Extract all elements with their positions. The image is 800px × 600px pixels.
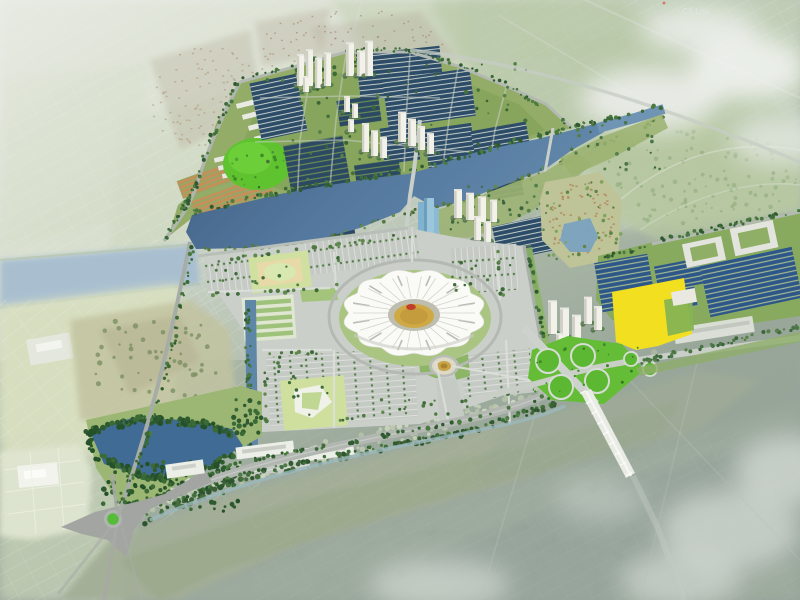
svg-text:Cổ Loa: Cổ Loa xyxy=(682,6,710,16)
